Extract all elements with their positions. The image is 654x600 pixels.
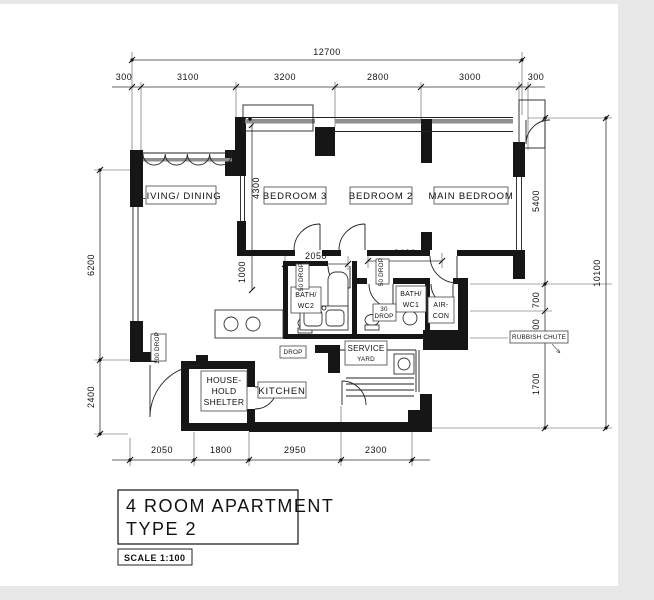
dim-bot-1800: 1800	[210, 445, 232, 455]
label-household-1: HOUSE-	[207, 375, 242, 385]
floorplan-drawing: 12700 300 3100 3200 2800 3000 300 6200 2…	[0, 0, 654, 600]
dim-top-300a: 300	[116, 72, 133, 82]
note-drop30-2: DROP	[375, 313, 394, 320]
label-living-dining: LIVING/ DINING	[141, 191, 222, 202]
dim-bot-2050: 2050	[151, 445, 173, 455]
dim-top-total: 12700	[313, 47, 341, 57]
label-service-2: YARD	[357, 356, 375, 363]
hob-burner-1	[224, 317, 238, 331]
label-bath-wc2-1: BATH/	[295, 292, 317, 299]
floorplan-page: 12700 300 3100 3200 2800 3000 300 6200 2…	[0, 0, 654, 600]
scale-label: SCALE 1:100	[124, 553, 186, 563]
page-edge-right	[618, 0, 654, 600]
dim-right-1700: 1700	[531, 373, 541, 395]
label-bath-wc1-1: BATH/	[400, 291, 422, 298]
label-service-1: SERVICE	[347, 344, 384, 353]
dim-right-700: 700	[531, 292, 541, 309]
basin-wc1	[403, 311, 417, 325]
label-household-3: SHELTER	[204, 397, 245, 407]
dim-top-300b: 300	[528, 72, 545, 82]
label-aircon-2: CON	[433, 313, 449, 320]
label-bedroom3: BEDROOM 3	[263, 191, 327, 202]
dim-bot-2950: 2950	[284, 445, 306, 455]
window-bedroom3	[245, 119, 315, 124]
note-drop30-1: 30	[380, 306, 388, 313]
dim-left-6200: 6200	[86, 254, 96, 276]
dim-top-3100: 3100	[177, 72, 199, 82]
hob-burner-2	[246, 317, 260, 331]
cistern-wc1	[365, 325, 379, 330]
title-line2: TYPE 2	[126, 519, 197, 539]
dim-right-total: 10100	[592, 259, 602, 287]
sink-faucet	[322, 306, 326, 310]
label-aircon-1: AIR-	[433, 302, 449, 309]
note-drop50-b: 50 DROP	[378, 258, 385, 286]
note-drop50-a: 50 DROP	[298, 263, 305, 291]
dim-top-2800: 2800	[367, 72, 389, 82]
note-rubbish-chute: RUBBISH CHUTE	[512, 334, 566, 341]
note-drop100: 100 DROP	[154, 332, 161, 364]
label-household-2: HOLD	[212, 386, 237, 396]
window-bedroom2	[335, 119, 421, 124]
note-drop-kitchen: DROP	[284, 349, 303, 356]
sink-bowl-2	[326, 310, 344, 326]
dim-inner-1000: 1000	[237, 261, 247, 283]
dim-right-5400: 5400	[531, 190, 541, 212]
label-main-bedroom: MAIN BEDROOM	[428, 191, 513, 202]
title-line1: 4 ROOM APARTMENT	[126, 496, 334, 516]
dim-left-2400: 2400	[86, 386, 96, 408]
dim-top-3200: 3200	[274, 72, 296, 82]
label-bath-wc1-2: WC1	[403, 302, 419, 309]
window-living-bay	[143, 158, 232, 162]
label-bath-wc2-2: WC2	[298, 303, 314, 310]
dim-inner-4300: 4300	[251, 177, 261, 199]
label-kitchen: KITCHEN	[258, 386, 305, 397]
label-bedroom2: BEDROOM 2	[349, 191, 413, 202]
page-edge-top	[0, 0, 654, 4]
window-main-bedroom	[432, 119, 513, 124]
dim-bot-2300: 2300	[365, 445, 387, 455]
page-edge-bottom	[0, 586, 654, 600]
washing-machine-drum	[398, 358, 410, 370]
dim-top-3000: 3000	[459, 72, 481, 82]
